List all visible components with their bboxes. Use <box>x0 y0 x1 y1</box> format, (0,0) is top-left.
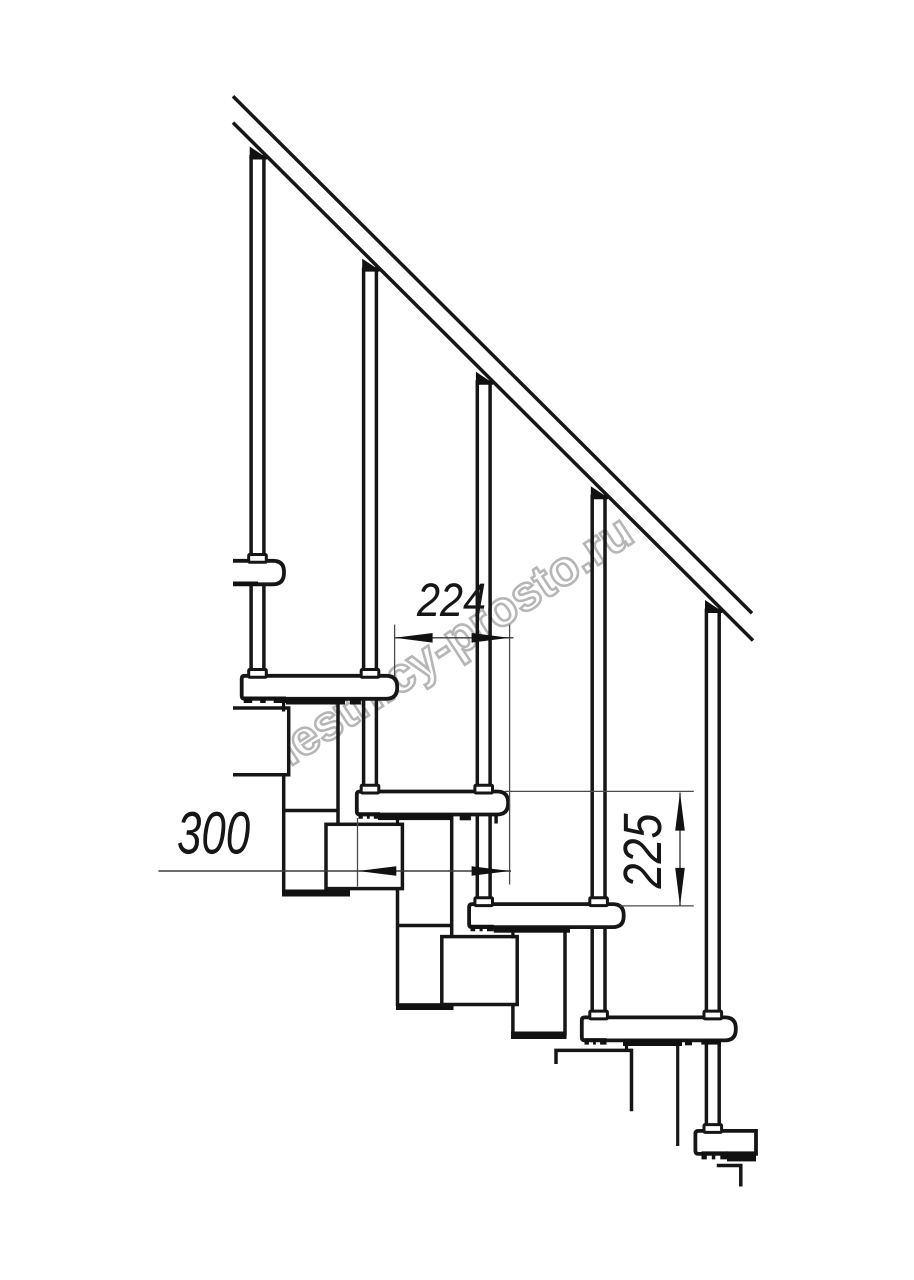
svg-text:224: 224 <box>416 573 486 626</box>
svg-text:300: 300 <box>177 800 250 867</box>
svg-text:225: 225 <box>613 813 673 890</box>
